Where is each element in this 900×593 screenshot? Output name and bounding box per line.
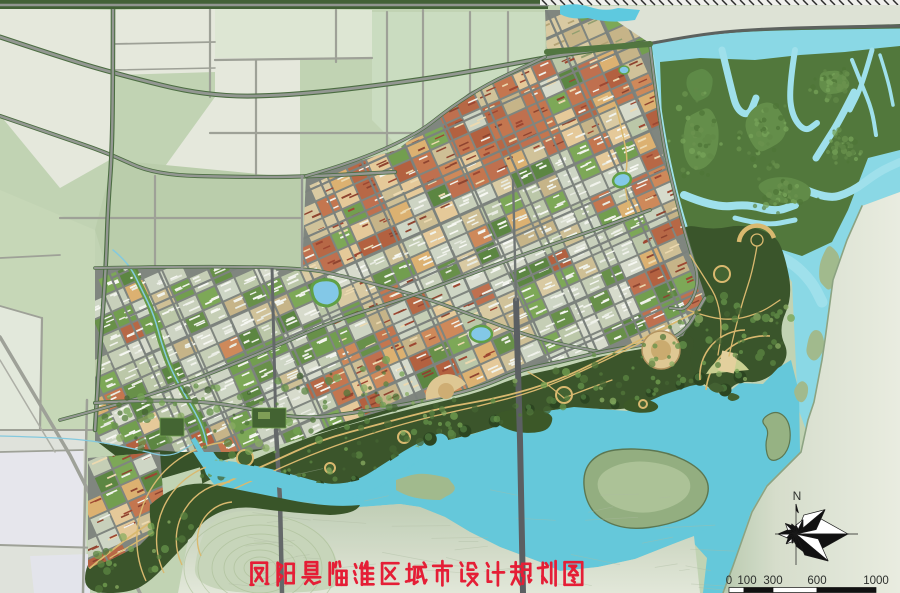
svg-text:0: 0 [726,575,732,587]
svg-text:1000: 1000 [863,575,889,587]
svg-text:300: 300 [763,575,782,587]
svg-text:N: N [793,489,802,503]
svg-text:100: 100 [737,575,756,587]
svg-text:600: 600 [807,575,826,587]
